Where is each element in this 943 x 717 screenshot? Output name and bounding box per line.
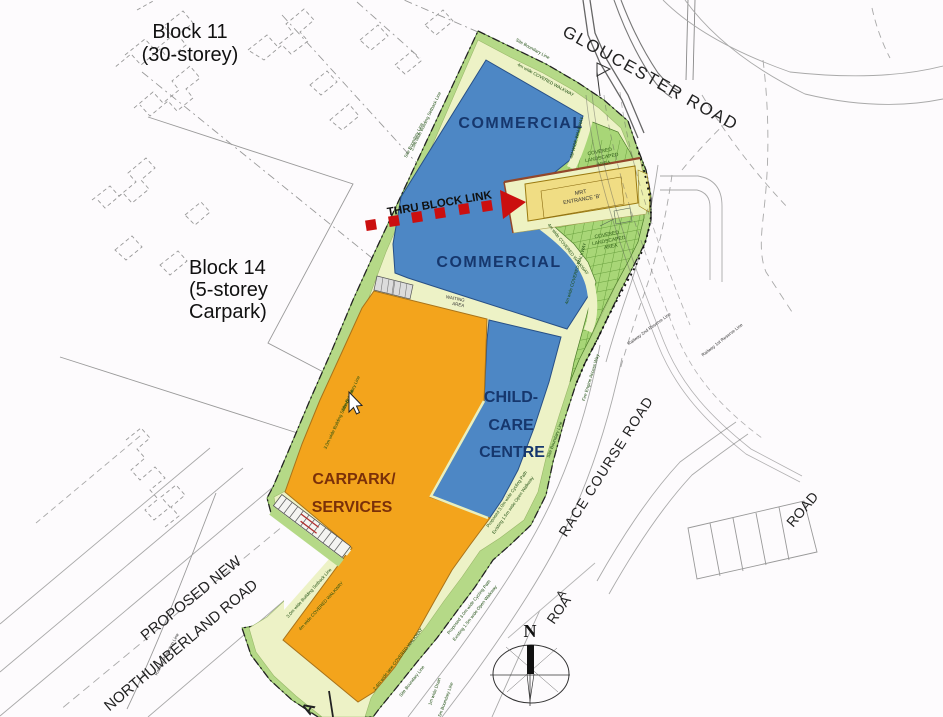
svg-text:Carpark): Carpark)	[189, 301, 267, 323]
svg-text:Block 11: Block 11	[152, 21, 227, 43]
svg-text:CHILD-: CHILD-	[484, 389, 538, 406]
svg-text:Block 14: Block 14	[189, 257, 266, 279]
svg-text:SERVICES: SERVICES	[312, 499, 393, 516]
svg-text:(5-storey: (5-storey	[189, 279, 268, 301]
svg-text:COMMERCIAL: COMMERCIAL	[458, 115, 583, 132]
svg-text:CARE: CARE	[488, 417, 534, 434]
svg-text:COMMERCIAL: COMMERCIAL	[436, 254, 561, 271]
svg-text:(30-storey): (30-storey)	[142, 44, 239, 66]
svg-text:CENTRE: CENTRE	[479, 444, 545, 461]
svg-text:N: N	[524, 621, 537, 641]
svg-text:CARPARK/: CARPARK/	[312, 471, 396, 488]
